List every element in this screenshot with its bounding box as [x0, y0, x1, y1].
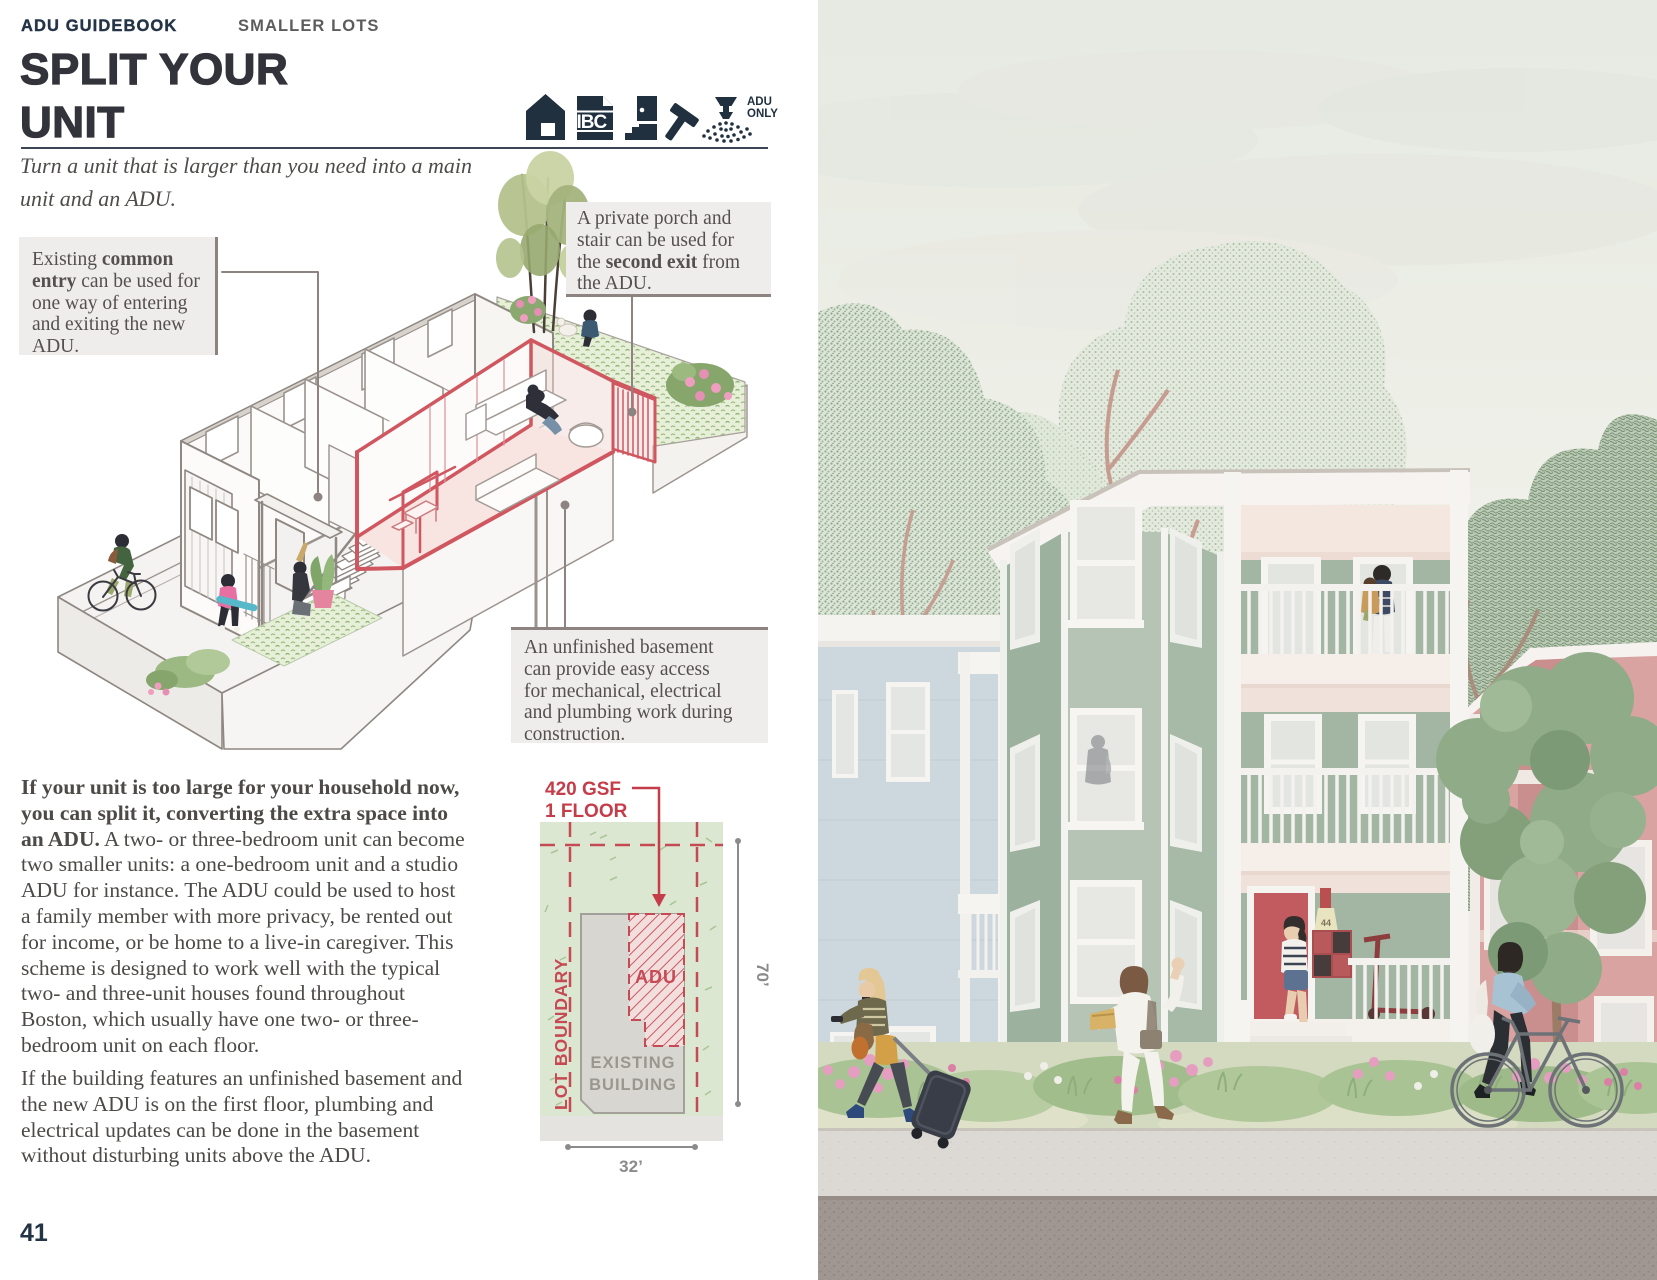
- svg-text:32’: 32’: [619, 1157, 643, 1176]
- svg-text:EXISTING: EXISTING: [590, 1054, 675, 1072]
- svg-text:LOT BOUNDARY: LOT BOUNDARY: [551, 958, 571, 1110]
- svg-text:44: 44: [1321, 918, 1331, 928]
- svg-text:70’: 70’: [753, 963, 770, 987]
- svg-text:1 FLOOR: 1 FLOOR: [545, 801, 628, 822]
- svg-text:BUILDING: BUILDING: [589, 1076, 677, 1094]
- svg-text:ADU: ADU: [635, 967, 677, 987]
- svg-text:420 GSF: 420 GSF: [545, 779, 621, 800]
